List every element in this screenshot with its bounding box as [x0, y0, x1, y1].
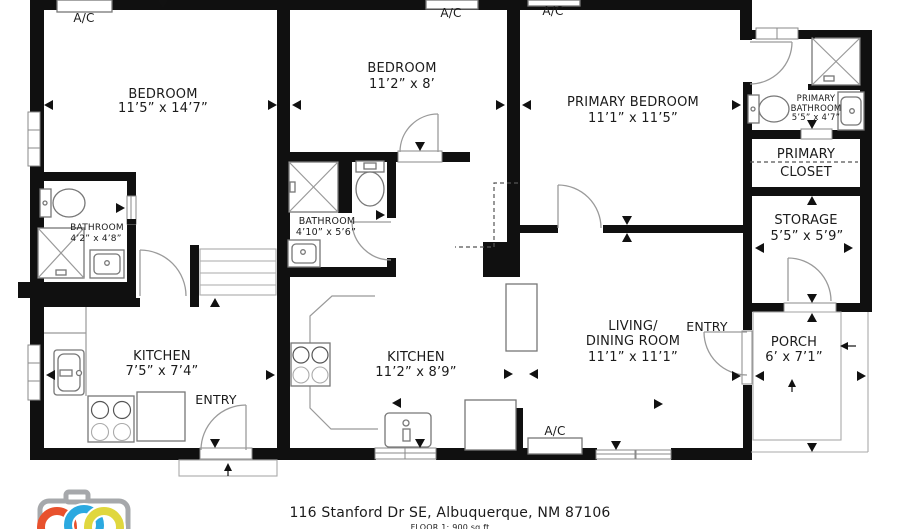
- wall: [832, 130, 872, 139]
- dim-arrow: [376, 210, 385, 220]
- wall: [30, 448, 202, 460]
- dim-arrow: [44, 100, 53, 110]
- room-label-storage: STORAGE: [774, 213, 837, 228]
- dim-arrow: [857, 371, 866, 381]
- wall: [252, 448, 376, 460]
- toilet-icon: [759, 96, 789, 122]
- room-label-kitchen-1: KITCHEN: [133, 349, 191, 364]
- wall: [338, 158, 352, 213]
- room-label-primary-closet-2: CLOSET: [780, 165, 832, 180]
- pantry-cabinet: [506, 284, 537, 351]
- door-arc: [352, 222, 391, 260]
- wall: [507, 0, 520, 277]
- room-label-primary-bedroom: PRIMARY BEDROOM: [567, 95, 699, 110]
- room-label-living-dining-1: LIVING/: [608, 319, 658, 334]
- room-dims-bathroom-2: 4’10” x 5’6”: [296, 227, 356, 238]
- wall: [743, 303, 784, 312]
- door-threshold: [801, 129, 832, 139]
- room-dims-primary-bedroom: 11’1” x 11’5”: [588, 111, 678, 126]
- wall: [190, 245, 199, 307]
- counter-edge: [310, 386, 378, 429]
- room-dims-storage: 5’5” x 5’9”: [771, 229, 844, 244]
- toilet-flush-icon: [43, 201, 47, 205]
- wall: [671, 448, 751, 460]
- wall: [745, 130, 801, 139]
- ac-unit: [528, 438, 582, 454]
- shower-head-icon: [824, 76, 834, 81]
- faucet-icon: [403, 420, 409, 426]
- dim-arrow: [755, 243, 764, 253]
- room-dims-primary-bathroom: 5’5” x 4’7”: [792, 113, 840, 123]
- faucet-icon: [77, 371, 82, 376]
- room-labels: BEDROOM 11’5” x 14’7” BEDROOM 11’2” x 8’…: [70, 4, 843, 438]
- room-label-bedroom-2: BEDROOM: [367, 61, 436, 76]
- wall: [288, 267, 396, 277]
- shower-head-icon: [290, 182, 295, 192]
- dim-arrow: [504, 369, 513, 379]
- wall: [603, 225, 743, 233]
- dim-arrow: [266, 370, 275, 380]
- door-jamb: [127, 219, 136, 224]
- door-arc: [140, 250, 186, 296]
- door-arc: [704, 332, 747, 375]
- dim-arrow: [732, 100, 741, 110]
- room-dims-bedroom-2: 11’2” x 8’: [369, 77, 435, 92]
- dim-arrow: [268, 100, 277, 110]
- room-label-bathroom-2: BATHROOM: [299, 216, 356, 227]
- dim-arrow: [224, 463, 232, 471]
- floor-info-text: FLOOR 1: 900 sq ft: [411, 523, 490, 529]
- dim-arrow: [496, 100, 505, 110]
- dim-arrow: [807, 313, 817, 322]
- room-dims-porch: 6’ x 7’1”: [765, 350, 823, 365]
- room-label-primary-bathroom-1: PRIMARY: [797, 94, 836, 104]
- dim-arrow: [611, 441, 621, 450]
- wall: [836, 303, 872, 312]
- dim-arrow: [788, 379, 796, 387]
- counter-cabinet: [137, 392, 185, 441]
- faucet-icon: [850, 109, 855, 114]
- dim-arrow: [622, 216, 632, 225]
- fridge-icon: [465, 400, 516, 450]
- wall: [44, 172, 136, 181]
- door-threshold: [398, 151, 442, 162]
- ac-label: A/C: [542, 4, 563, 18]
- dim-arrow: [622, 233, 632, 242]
- room-dims-bedroom-1: 11’5” x 14’7”: [118, 101, 208, 116]
- room-dims-kitchen-2: 11’2” x 8’9”: [375, 365, 456, 380]
- faucet-icon: [403, 429, 410, 441]
- entry-label-living: ENTRY: [686, 319, 728, 334]
- dim-arrow: [46, 370, 55, 380]
- dim-arrow: [844, 243, 853, 253]
- room-label-porch: PORCH: [771, 335, 817, 350]
- door-threshold: [742, 331, 752, 384]
- wall: [44, 298, 140, 307]
- dim-arrow: [807, 196, 817, 205]
- dim-arrow: [654, 399, 663, 409]
- room-label-living-dining-2: DINING ROOM: [586, 334, 680, 349]
- entry-label-kitchen: ENTRY: [195, 392, 237, 407]
- room-label-bathroom-1: BATHROOM: [70, 223, 124, 233]
- faucet-icon: [105, 261, 110, 266]
- dim-arrow: [210, 439, 220, 448]
- ac-label: A/C: [73, 11, 94, 25]
- toilet-flush-icon: [751, 107, 755, 111]
- floor-plan-page: BEDROOM 11’5” x 14’7” BEDROOM 11’2” x 8’…: [0, 0, 900, 529]
- dim-arrow: [392, 398, 401, 408]
- porch-outline: [753, 312, 841, 440]
- door-threshold: [784, 303, 836, 312]
- room-dims-bathroom-1: 4’2” x 4’8”: [70, 234, 121, 244]
- footer: 116 Stanford Dr SE, Albuquerque, NM 8710…: [289, 505, 610, 529]
- dim-arrow: [807, 443, 817, 452]
- wall: [860, 30, 872, 312]
- door-arc: [201, 405, 246, 450]
- wall: [30, 0, 745, 10]
- camera-bump-icon: [66, 492, 88, 502]
- room-label-primary-closet-1: PRIMARY: [777, 147, 835, 162]
- dim-arrow: [529, 369, 538, 379]
- dim-arrow: [522, 100, 531, 110]
- dim-arrow: [116, 203, 125, 213]
- window: [28, 345, 40, 400]
- wall: [277, 0, 290, 448]
- room-label-bedroom-1: BEDROOM: [128, 87, 197, 102]
- room-dims-kitchen-1: 7’5” x 7’4”: [126, 364, 199, 379]
- wall: [18, 282, 136, 298]
- door-threshold: [200, 448, 252, 459]
- toilet-flush-icon: [364, 163, 376, 169]
- toilet-icon: [356, 172, 384, 206]
- window: [28, 112, 40, 166]
- dim-arrow: [415, 142, 425, 151]
- toilet-icon: [53, 189, 85, 217]
- dim-arrow: [807, 294, 817, 303]
- dim-arrow: [732, 371, 741, 381]
- walls: [18, 0, 872, 460]
- shower-head-icon: [56, 270, 66, 275]
- photographer-logo: [40, 492, 128, 529]
- wall: [520, 225, 558, 233]
- closet-shelves: [200, 249, 276, 295]
- floor-plan-drawing: BEDROOM 11’5” x 14’7” BEDROOM 11’2” x 8’…: [0, 0, 900, 529]
- door-arc: [750, 42, 792, 84]
- stove-icon: [291, 343, 330, 386]
- ac-label: A/C: [440, 6, 461, 20]
- address-text: 116 Stanford Dr SE, Albuquerque, NM 8710…: [289, 505, 610, 521]
- room-dims-living-dining: 11’1” x 11’1”: [588, 350, 678, 365]
- room-label-kitchen-2: KITCHEN: [387, 350, 445, 365]
- wall: [743, 385, 752, 460]
- faucet-icon: [60, 370, 72, 376]
- door-arc: [558, 185, 601, 228]
- dim-arrow: [292, 100, 301, 110]
- wall: [387, 158, 396, 218]
- ac-label: A/C: [544, 424, 565, 438]
- dim-arrow: [755, 371, 764, 381]
- wall: [442, 152, 470, 162]
- counter-edge: [310, 296, 375, 343]
- faucet-icon: [301, 250, 306, 255]
- wall: [743, 187, 872, 196]
- dim-arrow: [210, 298, 220, 307]
